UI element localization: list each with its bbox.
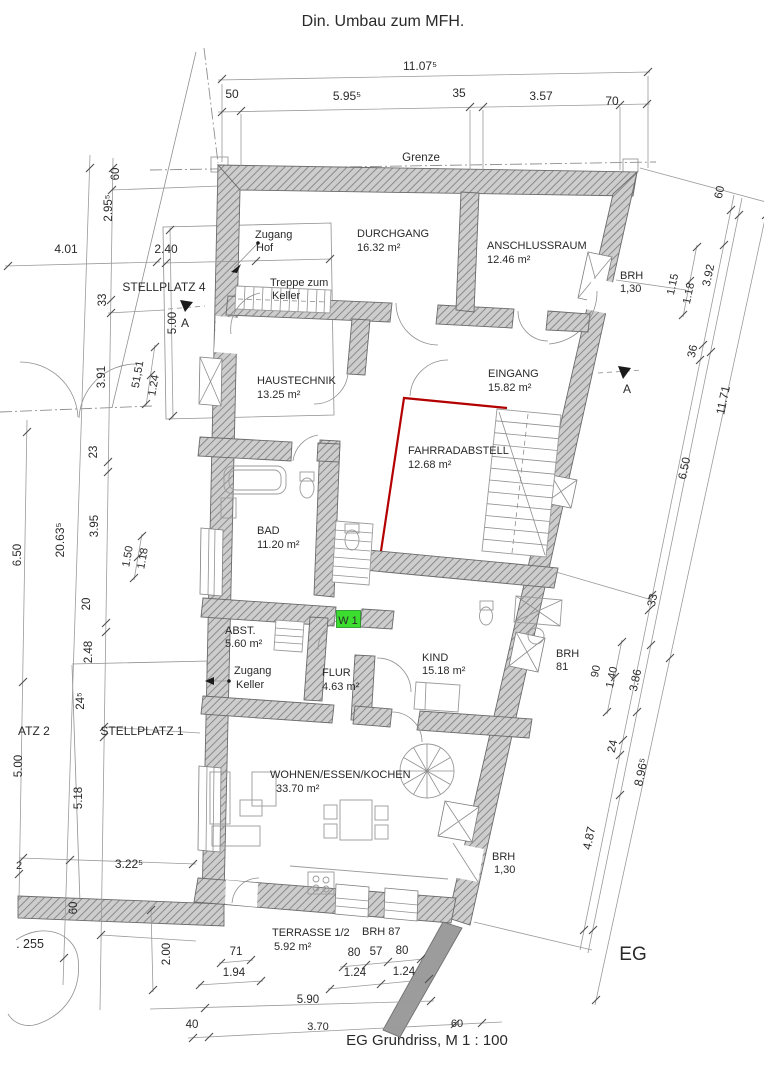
wall-durchgang-c (546, 311, 590, 332)
door-bad (293, 435, 318, 461)
wall-garden (18, 896, 224, 926)
site-line-west (112, 52, 196, 408)
label-stellplatz4-label: STELLPLATZ 4 (122, 280, 205, 294)
boundary-line-topleft (204, 48, 218, 163)
window-bad (200, 528, 223, 596)
label-dim-bottom-80a: 80 (348, 947, 361, 959)
label-eingang-label: EINGANG (488, 368, 539, 380)
label-dim-bottom-71: 71 (230, 946, 243, 958)
label-kind-area: 15.18 m² (422, 665, 466, 677)
door-durchgang-eingang (396, 303, 438, 345)
label-brh87-label: BRH 87 (362, 926, 401, 938)
label-dim-bottom-200: 2.00 (161, 943, 173, 965)
label-dim-bottom-57: 57 (370, 946, 383, 958)
label-dim-bottom-124a: 1.24 (344, 967, 367, 979)
door-anschlussraum (518, 311, 548, 341)
label-abst-area: 5.60 m² (225, 638, 263, 650)
label-dim-left-20: 20 (81, 598, 93, 611)
label-section-a-right-label: A (623, 382, 631, 396)
label-fahrrad-label: FAHRRADABSTELL (408, 445, 509, 457)
label-treppe-keller-2: Keller (272, 290, 300, 302)
label-dim-right-8965: 8.96⁵ (631, 757, 651, 788)
label-terrasse-area: 5.92 m² (274, 941, 312, 953)
label-dim-left-2: 2 (16, 860, 22, 872)
label-flur-area: 4.63 m² (322, 681, 360, 693)
wall-durchgang-b (436, 305, 514, 328)
label-dim-top-595: 5.95⁵ (333, 89, 361, 103)
label-dim-right-90: 90 (589, 664, 603, 678)
label-bad-label: BAD (257, 525, 280, 537)
label-brh130b-2: 1,30 (494, 864, 515, 876)
label-level-label: EG (619, 944, 646, 965)
label-abst-label: ABST. (225, 625, 256, 637)
boundary-stone-right (623, 159, 638, 172)
label-haustechnik-label: HAUSTECHNIK (257, 375, 337, 387)
label-title: Din. Umbau zum MFH. (302, 13, 465, 30)
label-stellplatz2-label: ATZ 2 (18, 724, 50, 738)
label-durchgang-area: 16.32 m² (357, 242, 401, 254)
label-dim-right-33: 33 (646, 593, 660, 608)
label-brh130a-2: 1,30 (620, 283, 641, 295)
gate-arc-left (20, 362, 78, 417)
label-grenze-label: Grenze (402, 152, 440, 164)
label-dim-left-500b: 5.00 (13, 755, 25, 777)
label-zugang-hof-2: Hof (256, 242, 274, 254)
door-gap-zugang-hof (214, 316, 240, 354)
label-dim-wall-60: 60 (68, 902, 80, 915)
label-dim-bottom-590: 5.90 (297, 994, 319, 1006)
label-dim-top-50: 50 (225, 87, 239, 101)
label-dim-right-118: 1.18 (681, 282, 697, 305)
label-dim-left-2063: 20.63⁵ (53, 522, 67, 557)
door-fahrrad (410, 360, 448, 396)
chair-4 (375, 825, 388, 839)
label-stellplatz1-label: STELLPLATZ 1 (100, 724, 183, 738)
label-wohnen-label: WOHNEN/ESSEN/KOCHEN (270, 769, 411, 781)
label-brh130b-1: BRH (492, 851, 515, 863)
label-section-a-top-label: A (181, 316, 189, 330)
wall-top (218, 165, 637, 196)
chair-3 (324, 824, 337, 838)
door-flur-kind (377, 658, 411, 692)
label-dim-left-245: 24⁵ (75, 692, 87, 710)
label-dim-bottom-40: 40 (186, 1019, 199, 1031)
label-fahrrad-area: 12.68 m² (408, 459, 452, 471)
label-dim-left-248: 2.48 (83, 641, 95, 663)
label-eingang-area: 15.82 m² (488, 382, 532, 394)
label-zugang-keller-2: Keller (236, 679, 264, 691)
label-zugang-keller-1: Zugang (234, 665, 271, 677)
label-dim-left-33: 33 (97, 294, 109, 307)
label-dim-top-35: 35 (452, 86, 466, 100)
label-zugang-hof-1: Zugang (255, 229, 292, 241)
label-dim-right-487: 4.87 (580, 825, 599, 851)
label-dim-top-total: 11.07⁵ (403, 59, 437, 73)
label-dim-top-357: 3.57 (529, 89, 553, 103)
label-dim-left-60-top: 60 (110, 168, 122, 181)
chair-1 (324, 805, 337, 819)
label-brh81-2: 81 (556, 661, 568, 673)
label-dim-left-500a: 5.00 (167, 312, 179, 334)
label-caption: EG Grundriss, M 1 : 100 (346, 1032, 508, 1049)
label-dim-left-395: 3.95 (89, 515, 101, 537)
label-wohnen-area: 33.70 m² (276, 783, 320, 795)
floor-plan-sheet: Din. Umbau zum MFH.11.07⁵505.95⁵353.5770… (0, 0, 764, 1080)
label-dim-left-23: 23 (88, 446, 100, 459)
label-kind-label: KIND (422, 652, 448, 664)
label-brh130a-1: BRH (620, 270, 643, 282)
label-dim-left-124: 1.24 (146, 374, 162, 397)
label-flur-label: FLUR (322, 667, 351, 679)
floor-plan-drawing: Din. Umbau zum MFH.11.07⁵505.95⁵353.5770… (0, 0, 764, 1080)
label-dim-right-24: 24 (606, 738, 621, 754)
label-dim-right-1171: 11.71 (713, 384, 733, 416)
label-dim-left-240: 2.40 (154, 242, 178, 256)
label-dim-left-150: 1.50 (120, 545, 136, 568)
label-dim-left-391: 3.91 (96, 366, 108, 388)
wall-flur-bottom (353, 706, 392, 727)
label-dim-bottom-80b: 80 (396, 945, 409, 957)
label-dim-left-650: 6.50 (12, 544, 24, 566)
label-dim-bottom-124b: 1.24 (393, 966, 416, 978)
window-wohnen (198, 766, 221, 852)
wall-bad-top-b (317, 443, 340, 462)
wall-haustechnik-vert (347, 319, 370, 375)
stellplatz1-outline (72, 661, 217, 903)
wall-stub-w1 (360, 609, 394, 629)
label-dim-top-70: 70 (605, 94, 619, 108)
coffee-table (240, 800, 262, 816)
label-treppe-keller-1: Treppe zum (270, 277, 328, 289)
label-dim-right-140: 1.40 (604, 666, 620, 689)
label-dim-bottom-60: 60 (451, 1018, 463, 1030)
label-dim-left-518: 5.18 (73, 787, 85, 809)
label-anschlussraum-label: ANSCHLUSSRAUM (487, 240, 587, 252)
label-dim-right-60: 60 (713, 185, 727, 200)
label-dim-left-118: 1.18 (135, 547, 151, 570)
label-anschlussraum-area: 12.46 m² (487, 254, 531, 266)
label-brh81-1: BRH (556, 648, 579, 660)
label-parcel-label: . 255 (16, 937, 44, 951)
section-arrow-right (618, 366, 631, 379)
label-dim-right-115: 1.15 (665, 273, 681, 296)
label-dim-right-36: 36 (686, 344, 700, 359)
label-haustechnik-area: 13.25 m² (257, 389, 301, 401)
boundary-line-left (0, 406, 152, 412)
wall-anschluss-vert (456, 192, 479, 312)
label-durchgang-label: DURCHGANG (357, 228, 429, 240)
label-dim-left-401: 4.01 (54, 242, 78, 256)
label-dim-right-650: 6.50 (677, 456, 693, 480)
label-dim-bottom-370: 3.70 (307, 1021, 328, 1033)
chair-2 (375, 806, 388, 820)
label-dim-bottom-194: 1.94 (223, 967, 246, 979)
bed-kind (414, 682, 460, 712)
label-w1-label: W 1 (338, 615, 358, 627)
label-bad-area: 11.20 m² (257, 539, 300, 551)
label-terrasse-label: TERRASSE 1/2 (272, 927, 350, 939)
label-dim-left-3225: 3.22⁵ (115, 857, 143, 871)
dining-table (340, 800, 372, 840)
label-dim-right-392: 3.92 (701, 263, 717, 287)
section-arrow-left (180, 300, 193, 312)
label-dim-left-295: 2.95⁵ (103, 194, 115, 221)
